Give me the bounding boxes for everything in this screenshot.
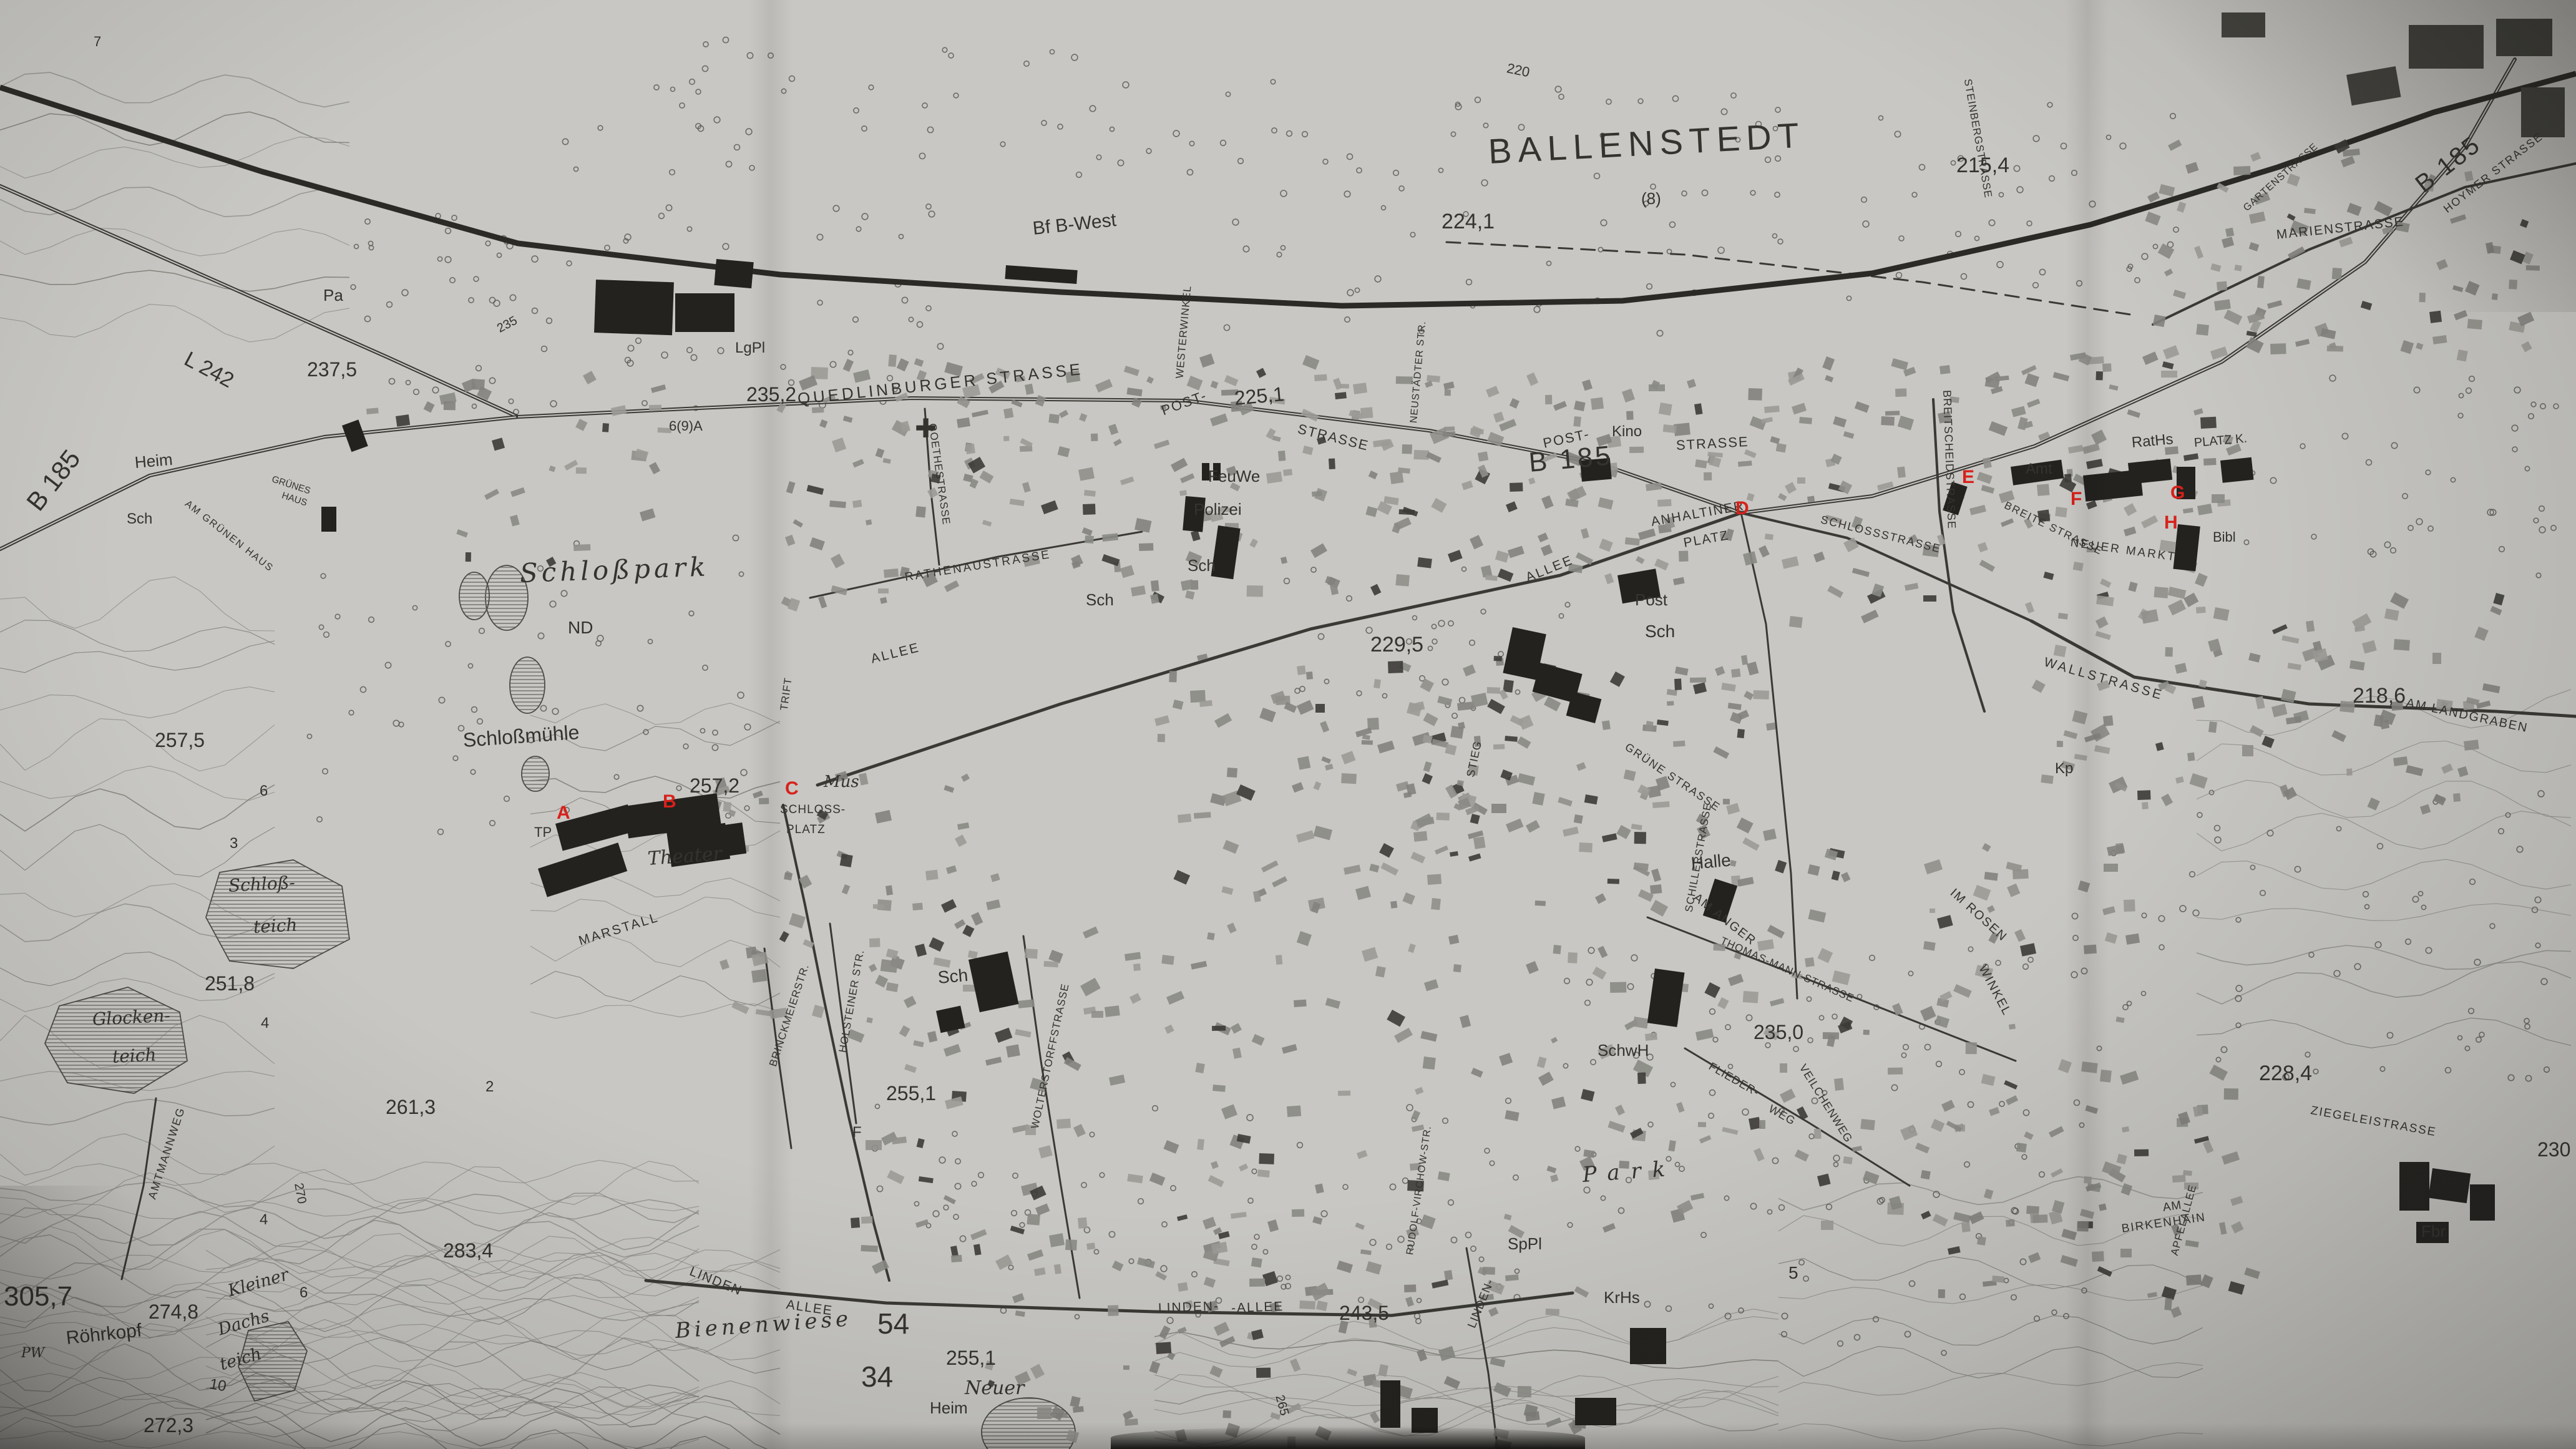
marker-c: C [785,779,799,798]
marker-f: F [2071,490,2082,509]
topographic-map: BALLENSTEDT BALLENSTEDT(8)215,4224,1220B… [0,0,2576,1449]
marker-a: A [557,804,570,822]
answer-markers: ABCDEFGH [0,0,2576,1449]
marker-b: B [663,793,676,811]
marker-d: D [1735,499,1749,518]
marker-h: H [2164,514,2178,532]
marker-e: E [1962,468,1974,487]
marker-g: G [2170,484,2185,502]
